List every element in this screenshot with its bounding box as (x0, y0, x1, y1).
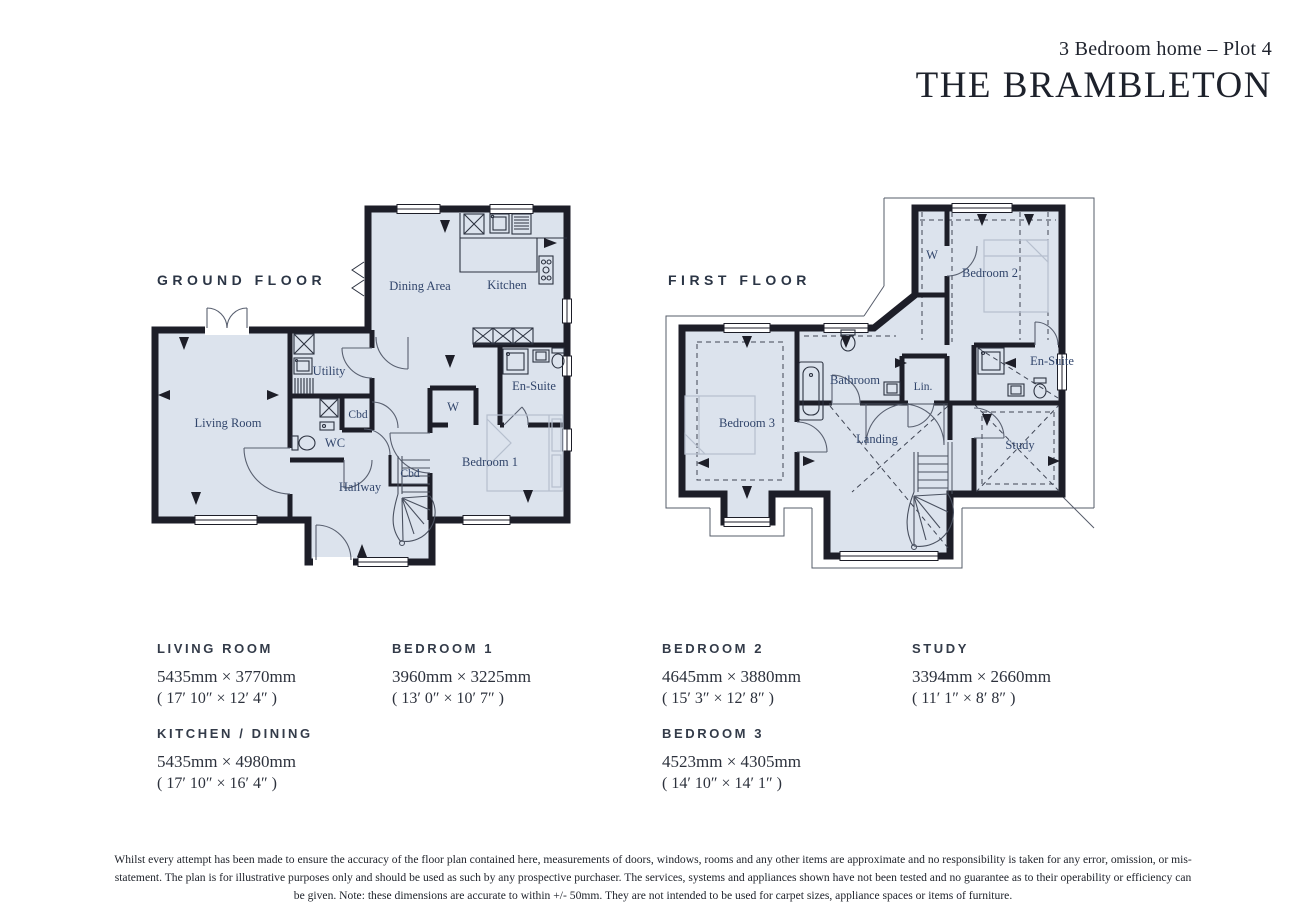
room-label-bedroom3: Bedroom 3 (719, 416, 775, 430)
ground-floor-plan: Dining Area Kitchen Utility Cbd WC W En-… (146, 198, 576, 578)
dim-metric: 5435mm × 4980mm (157, 752, 382, 772)
disclaimer-text: Whilst every attempt has been made to en… (112, 851, 1194, 905)
room-label-utility: Utility (313, 364, 346, 378)
dim-imperial: ( 11′ 1″ × 8′ 8″ ) (912, 690, 1137, 708)
room-label-landing: Landing (856, 432, 898, 446)
dim-metric: 3960mm × 3225mm (392, 667, 617, 687)
dim-name: BEDROOM 2 (662, 641, 887, 656)
room-label-living: Living Room (194, 416, 261, 430)
room-label-bedroom1: Bedroom 1 (462, 455, 518, 469)
room-label-dining: Dining Area (389, 279, 451, 293)
dim-imperial: ( 17′ 10″ × 12′ 4″ ) (157, 690, 382, 708)
dim-bedroom-2: BEDROOM 2 4645mm × 3880mm ( 15′ 3″ × 12′… (662, 641, 887, 708)
dim-imperial: ( 13′ 0″ × 10′ 7″ ) (392, 690, 617, 708)
room-label-wc: WC (325, 436, 345, 450)
dim-bedroom-3: BEDROOM 3 4523mm × 4305mm ( 14′ 10″ × 14… (662, 726, 887, 793)
dim-imperial: ( 17′ 10″ × 16′ 4″ ) (157, 775, 382, 793)
room-label-hallway: Hallway (339, 480, 382, 494)
brochure-page: 3 Bedroom home – Plot 4 THE BRAMBLETON G… (0, 0, 1304, 923)
dim-name: STUDY (912, 641, 1137, 656)
dim-metric: 5435mm × 3770mm (157, 667, 382, 687)
gf-bifold-door (352, 262, 364, 296)
dim-metric: 4645mm × 3880mm (662, 667, 887, 687)
dim-imperial: ( 14′ 10″ × 14′ 1″ ) (662, 775, 887, 793)
room-label-bathroom: Bathroom (830, 373, 880, 387)
dim-living-room: LIVING ROOM 5435mm × 3770mm ( 17′ 10″ × … (157, 641, 382, 708)
dim-name: BEDROOM 1 (392, 641, 617, 656)
gf-footprint (155, 209, 567, 562)
room-label-cbd2: Cbd (400, 468, 419, 480)
dim-bedroom-1: BEDROOM 1 3960mm × 3225mm ( 13′ 0″ × 10′… (392, 641, 617, 708)
room-label-wardrobe-ff: W (926, 248, 938, 262)
dim-metric: 3394mm × 2660mm (912, 667, 1137, 687)
room-label-ensuite-ff: En-Suite (1030, 354, 1074, 368)
room-label-linen: Lin. (914, 381, 933, 393)
first-floor-plan: W Bedroom 2 Bathroom Bedroom 3 Lin. Land… (652, 190, 1112, 580)
room-label-cbd1: Cbd (348, 409, 367, 421)
dim-name: LIVING ROOM (157, 641, 382, 656)
dim-kitchen-dining: KITCHEN / DINING 5435mm × 4980mm ( 17′ 1… (157, 726, 382, 793)
dim-name: KITCHEN / DINING (157, 726, 382, 741)
room-label-wardrobe-gf: W (447, 400, 459, 414)
page-title: THE BRAMBLETON (916, 64, 1272, 107)
dim-imperial: ( 15′ 3″ × 12′ 8″ ) (662, 690, 887, 708)
room-label-ensuite-gf: En-Suite (512, 379, 556, 393)
dim-name: BEDROOM 3 (662, 726, 887, 741)
masthead: 3 Bedroom home – Plot 4 THE BRAMBLETON (916, 38, 1272, 107)
plot-subtitle: 3 Bedroom home – Plot 4 (916, 38, 1272, 61)
room-label-kitchen: Kitchen (487, 278, 527, 292)
dim-metric: 4523mm × 4305mm (662, 752, 887, 772)
room-label-bedroom2: Bedroom 2 (962, 266, 1018, 280)
dim-study: STUDY 3394mm × 2660mm ( 11′ 1″ × 8′ 8″ ) (912, 641, 1137, 708)
room-label-study: Study (1005, 438, 1035, 452)
